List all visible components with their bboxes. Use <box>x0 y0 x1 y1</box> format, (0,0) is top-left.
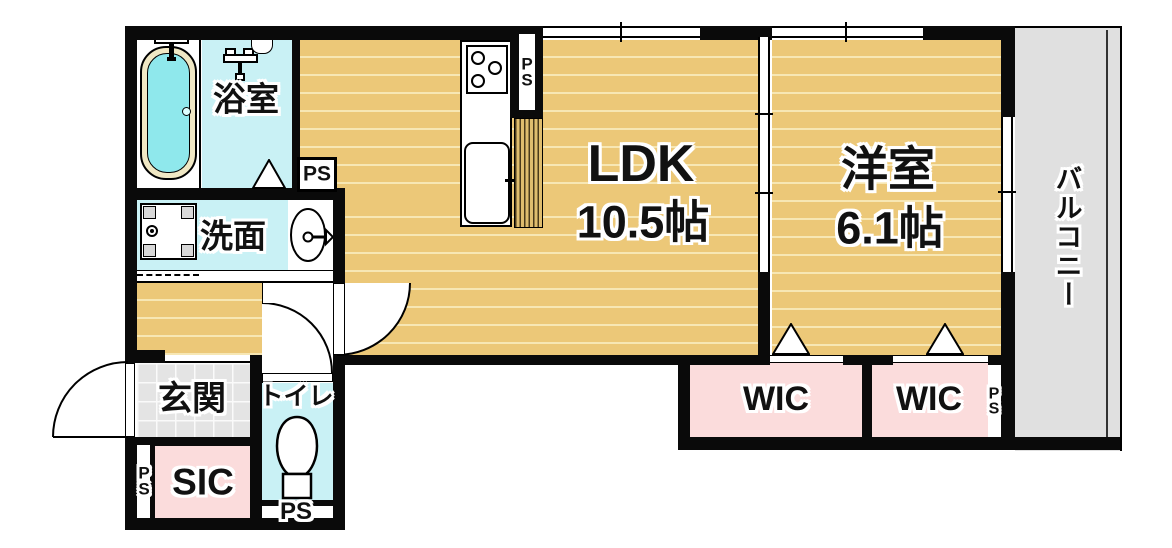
wall-washroom-right <box>333 197 345 283</box>
floor-plan: LDK 10.5帖 洋室 6.1帖 浴室 洗面 玄関 トイレ SIC WIC W… <box>0 0 1172 548</box>
bathtub-drain-icon <box>182 107 191 116</box>
stove-burner-3 <box>471 74 485 88</box>
ps-bath-label: PS <box>303 164 331 185</box>
sliding-door-ldk-western <box>758 37 770 272</box>
ldk-size-label: 10.5帖 <box>577 200 710 245</box>
wall-bottom-right <box>678 437 1120 450</box>
western-room-label: 洋室 <box>841 146 935 193</box>
entrance-step-line <box>165 361 250 363</box>
wall-right-upper <box>1001 26 1015 117</box>
wall-wic-left <box>678 355 690 447</box>
ps-toilet-label: PS <box>280 500 312 524</box>
wic-right-label: WIC <box>896 382 962 416</box>
toilet-label: トイレ <box>258 385 333 410</box>
wall-vestibule-right <box>333 355 345 530</box>
ps-kitchen-label: PS <box>519 56 536 87</box>
washer-corner-br <box>181 244 194 257</box>
ps-wic-label: PS <box>986 387 1002 416</box>
entrance-door-leaf <box>125 363 135 437</box>
window-western-tick <box>845 22 847 42</box>
balcony-label: バルコニー <box>1053 165 1080 310</box>
wic-right-opening <box>893 355 988 363</box>
washroom-floor-edge <box>137 270 333 271</box>
stove-burner-1 <box>471 51 485 65</box>
window-western-top <box>772 26 923 38</box>
wall-partition-lower <box>758 272 770 355</box>
washbasin-icon <box>288 203 334 267</box>
wall-right-lower <box>1001 272 1015 447</box>
entrance-door-swing <box>52 361 129 438</box>
ldk-label: LDK <box>588 138 695 190</box>
kitchen-sink <box>464 142 510 224</box>
wall-ldk-bottom <box>345 355 770 365</box>
wall-entrance-step <box>125 350 165 363</box>
toilet-icon <box>268 415 326 501</box>
stove-burner-2 <box>488 61 502 75</box>
washroom-step-dashes <box>137 274 199 276</box>
western-room-size-label: 6.1帖 <box>836 206 944 251</box>
refrigerator-space-hatch <box>514 118 543 228</box>
ldk-door-leaf <box>333 283 345 355</box>
bath-door-triangle <box>252 159 286 189</box>
window-balcony-tick <box>998 191 1016 193</box>
wic-left-opening <box>770 355 843 363</box>
bath-counter-icon <box>251 40 273 54</box>
washer-drain-dot <box>150 229 154 233</box>
wic-left-label: WIC <box>743 382 809 416</box>
toilet-door-swing <box>262 303 333 374</box>
window-western-balcony <box>1001 117 1013 272</box>
hallway-floor <box>137 283 262 355</box>
shower-mixer-icon <box>222 48 260 82</box>
wic-left-triangle <box>772 323 810 355</box>
washroom-label: 洗面 <box>200 220 266 253</box>
sliding-door-tick-1 <box>755 113 773 115</box>
ps-entrance-label: PS <box>136 465 153 496</box>
bathroom-label: 浴室 <box>213 83 279 116</box>
balcony-inner-line <box>1106 30 1108 445</box>
window-ldk-tick <box>620 22 622 42</box>
washer-corner-bl <box>143 244 156 257</box>
wic-right-triangle <box>926 323 964 355</box>
toilet-door-leaf <box>262 373 333 382</box>
wall-top-left <box>125 26 543 40</box>
shoe-closet-label: SIC <box>172 464 234 501</box>
washer-corner-tl <box>143 206 156 219</box>
entrance-label: 玄関 <box>158 382 226 416</box>
ldk-door-swing <box>337 283 411 356</box>
sliding-door-tick-2 <box>755 192 773 194</box>
western-room-floor <box>772 40 1003 355</box>
wall-wic-divider <box>862 363 872 437</box>
bath-partition-line <box>199 40 201 188</box>
washer-corner-tr <box>181 206 194 219</box>
